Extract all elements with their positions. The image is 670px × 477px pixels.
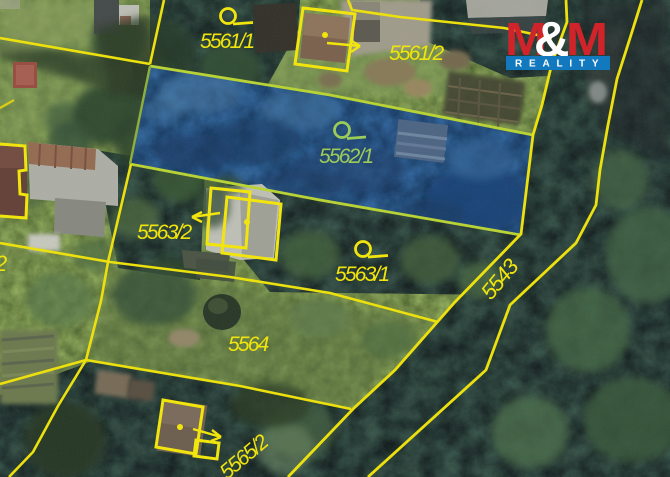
svg-text:REALITY: REALITY [515,59,605,70]
svg-text:2: 2 [0,251,7,276]
svg-text:5563/1: 5563/1 [335,263,389,286]
svg-text:5563/2: 5563/2 [137,221,193,244]
svg-text:5562/1: 5562/1 [319,145,373,168]
svg-text:5561/1: 5561/1 [200,30,254,53]
svg-text:5561/2: 5561/2 [389,42,445,65]
svg-text:5564: 5564 [228,333,269,356]
